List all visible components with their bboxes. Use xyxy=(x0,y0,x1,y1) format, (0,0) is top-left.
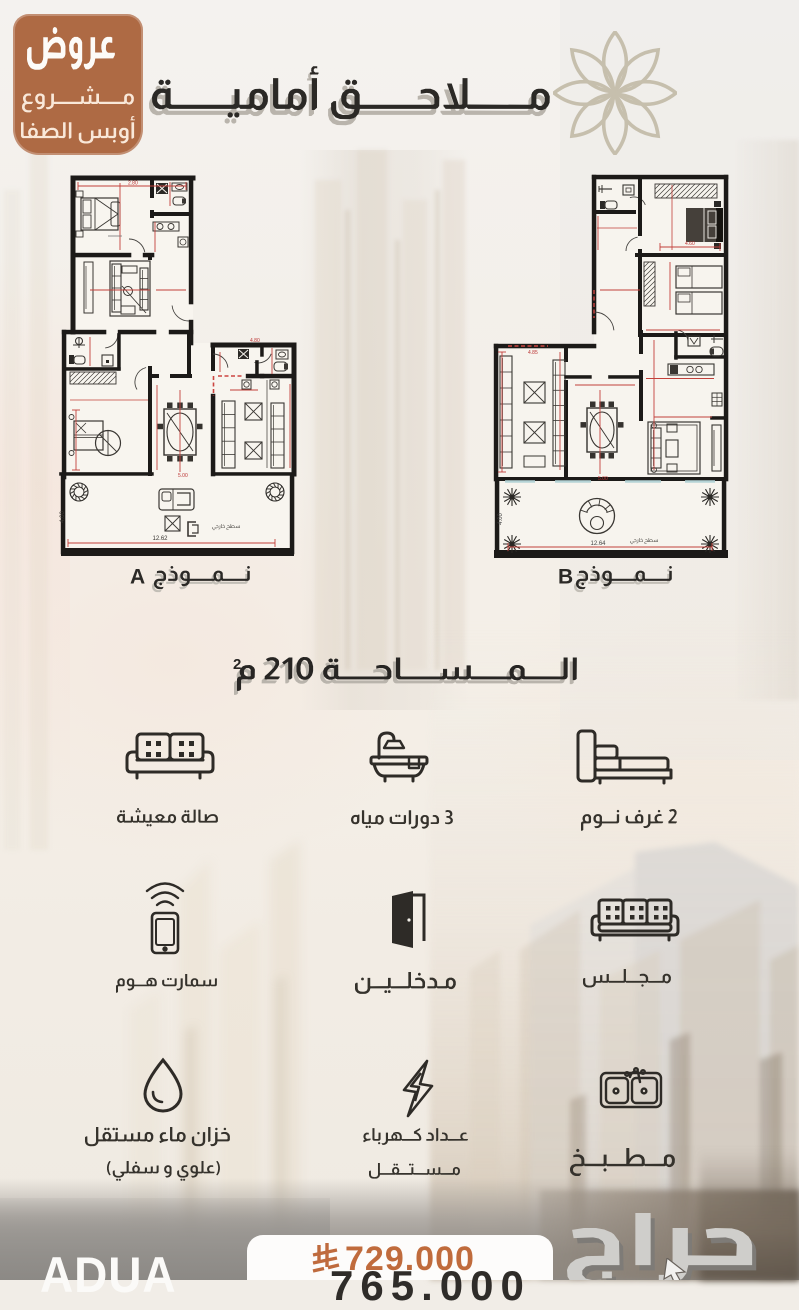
svg-text:2: 2 xyxy=(233,656,241,673)
svg-text:12.64: 12.64 xyxy=(590,541,606,547)
svg-text:4.00: 4.00 xyxy=(498,513,504,525)
svg-text:5.00: 5.00 xyxy=(598,476,608,482)
svg-text:4.85: 4.85 xyxy=(528,350,538,356)
svg-text:B: B xyxy=(558,566,573,589)
svg-text:A: A xyxy=(130,566,145,589)
svg-text:4.60: 4.60 xyxy=(685,241,695,247)
